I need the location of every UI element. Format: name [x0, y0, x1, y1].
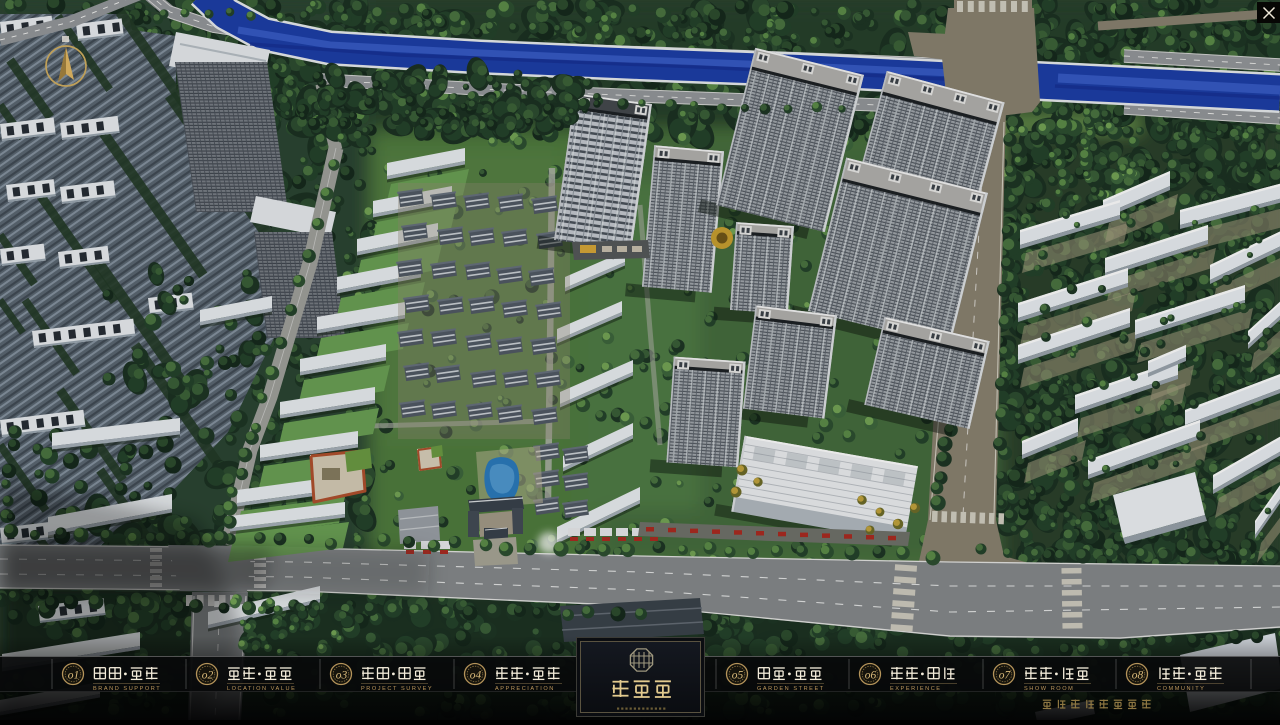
svg-text:o7: o7 [999, 670, 1012, 682]
svg-text:o2: o2 [202, 670, 214, 682]
svg-text:LOCATION VALUE: LOCATION VALUE [227, 686, 296, 692]
svg-text:o4: o4 [470, 670, 482, 682]
svg-text:BRAND SUPPORT: BRAND SUPPORT [93, 686, 161, 692]
svg-text:GARDEN STREET: GARDEN STREET [757, 686, 825, 692]
svg-text:o3: o3 [336, 670, 348, 682]
svg-text:EXPERIENCE: EXPERIENCE [890, 686, 942, 692]
svg-text:COMMUNITY: COMMUNITY [1157, 686, 1205, 692]
svg-text:PROJECT SURVEY: PROJECT SURVEY [361, 686, 433, 692]
svg-text:o5: o5 [732, 670, 744, 682]
svg-text:o8: o8 [1132, 670, 1144, 682]
svg-text:SHOW ROOM: SHOW ROOM [1024, 686, 1074, 692]
svg-text:o6: o6 [865, 670, 877, 682]
svg-text:o1: o1 [68, 670, 80, 682]
svg-text:APPRECIATION: APPRECIATION [495, 686, 555, 692]
